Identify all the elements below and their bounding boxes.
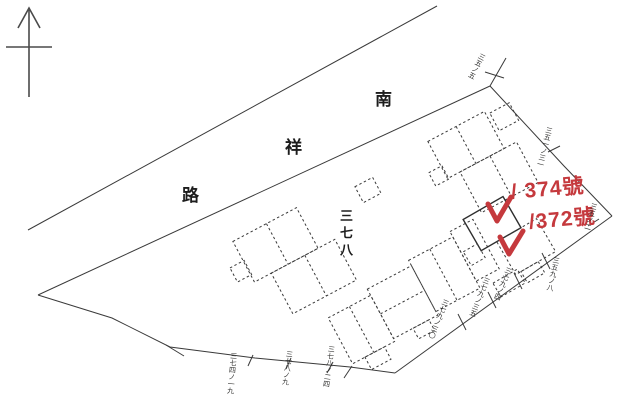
parcel-boundary bbox=[38, 86, 612, 378]
checkmark-372-icon bbox=[500, 231, 523, 254]
building-cluster-left bbox=[220, 199, 357, 330]
north-arrow-icon bbox=[6, 8, 52, 97]
road-name-char-xiang: 祥 bbox=[285, 139, 302, 156]
building-374-outline bbox=[463, 197, 521, 251]
road-upper-edge bbox=[28, 6, 437, 230]
road-name-char-nan: 南 bbox=[375, 91, 392, 108]
area-lot-label: 三七八 bbox=[339, 209, 352, 260]
map-linework bbox=[0, 0, 640, 405]
road-band bbox=[28, 6, 506, 295]
road-name-char-lu: 路 bbox=[182, 187, 199, 204]
survey-tick bbox=[248, 355, 253, 366]
cadastral-map: 南 祥 路 三七八 / 374號 /372號 三五ノ五 三五一ノ三一 三五ノ二 … bbox=[0, 0, 640, 405]
boundary-bottom-left-edge bbox=[38, 295, 395, 373]
road-lower-edge bbox=[38, 86, 490, 295]
road-end-line bbox=[490, 58, 506, 86]
building-cluster-top-right bbox=[416, 99, 549, 226]
building-small-square bbox=[355, 177, 381, 202]
survey-tick bbox=[344, 366, 352, 378]
checkmark-374-icon bbox=[488, 197, 511, 221]
road-end-tick bbox=[485, 72, 504, 78]
boundary-spur bbox=[166, 345, 184, 356]
survey-tick bbox=[548, 146, 560, 152]
